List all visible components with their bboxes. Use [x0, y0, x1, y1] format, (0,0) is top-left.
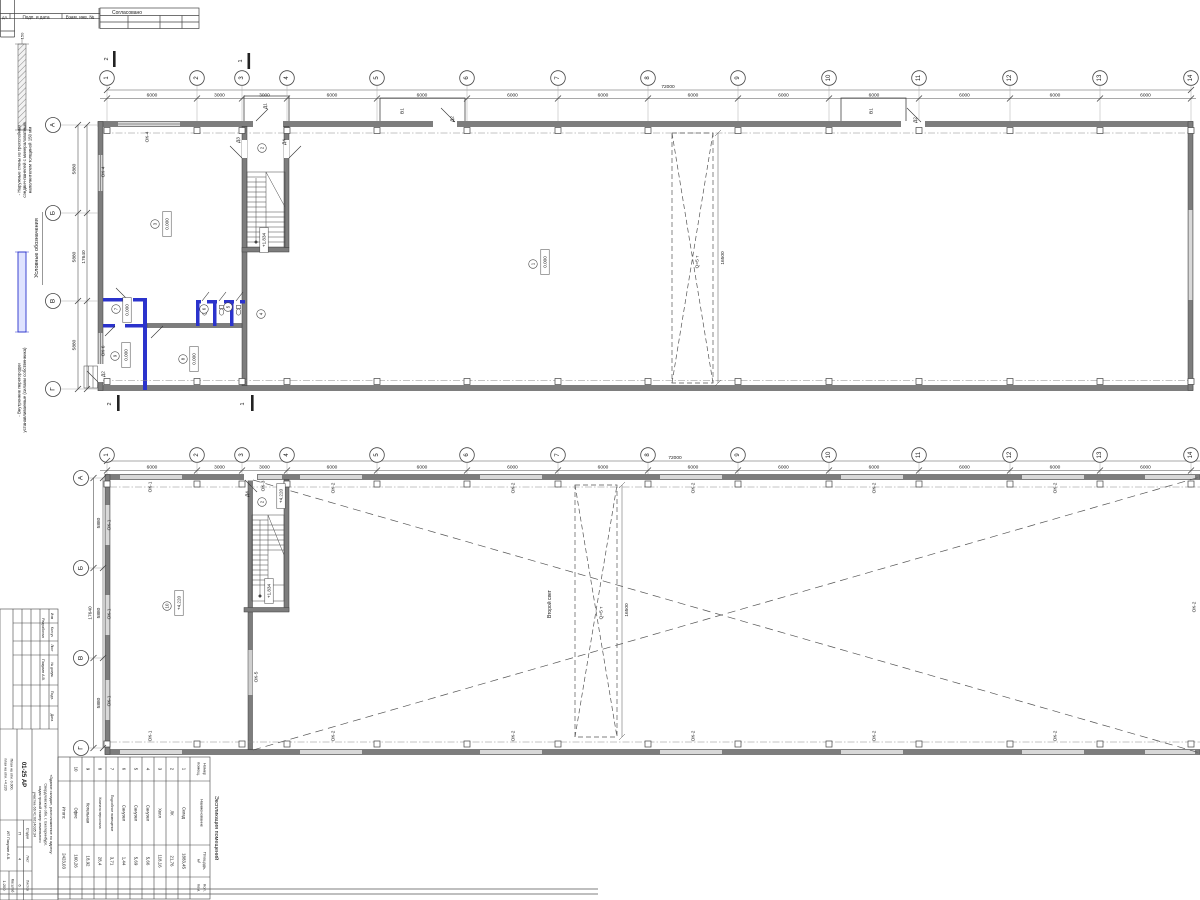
drawing-label: 6000 [507, 464, 518, 470]
level-value: +4.220 [177, 595, 182, 610]
schedule-room-name: ЛК [170, 810, 175, 816]
drawing-label: Взам. инв. № [66, 14, 95, 19]
axis-number: 10 [826, 74, 832, 81]
schedule-room-name: Подсобное помещение [110, 795, 114, 832]
schedule-room-area: 1883,45 [182, 853, 187, 869]
drawing-label: ОК-4 [145, 131, 151, 142]
axis-number: 10 [826, 451, 832, 458]
drawing-label: Q=5 т [599, 606, 605, 620]
schedule-room-area: 118,16 [158, 854, 163, 868]
floor-plan-drawing: ИзмКол.учЛист№ докум.Подп.ДатаРазработал… [0, 0, 1200, 900]
stamp-text: 6 [18, 884, 23, 887]
drawing-label: 6000 [147, 464, 158, 470]
door-openings [98, 121, 926, 383]
schedule-room-number: 2 [170, 768, 175, 771]
drawing-label: Q=5 т [695, 255, 701, 269]
plan-first-floor [78, 51, 1196, 411]
drawing-label: ОК-1 [107, 608, 113, 619]
drawing-label: В1 [400, 108, 406, 114]
schedule-room-number: 1 [182, 768, 187, 771]
drawing-label: 5880 [96, 607, 102, 618]
level-mark: 0.000 [163, 212, 171, 237]
schedule-room-area: 3,71 [110, 857, 115, 866]
stamp-text: «Здание склада», расположенное по адресу… [49, 775, 53, 855]
axis-letter: Б [50, 211, 57, 215]
schedule-header: Наименование [200, 799, 205, 828]
vestibules [84, 96, 906, 388]
stamp-text: 1:200 [2, 880, 7, 891]
drawing-label: ОК-2 [1053, 730, 1059, 741]
drawing-label: ОК-3 [261, 480, 267, 491]
level-mark: 0.000 [190, 347, 198, 372]
schedule-room-area: 18,92 [86, 856, 91, 868]
drawing-label: 6000 [417, 92, 428, 98]
drawing-label: 6000 [327, 464, 338, 470]
drawing-label: 3000 [259, 464, 270, 470]
drawing-label: ОК-1 [107, 695, 113, 706]
level-mark: 0.000 [123, 298, 131, 323]
drawing-label: 17640 [81, 250, 87, 264]
level-mark: +1.834 [260, 228, 268, 253]
drawing-label: ОК-2 [331, 730, 337, 741]
axis-letter: А [50, 122, 57, 127]
level-mark: +1.834 [265, 579, 273, 604]
schedule-room-number: 7 [110, 768, 115, 771]
drawing-label: Д2 [101, 371, 107, 377]
schedule-room-area: 5,66 [146, 857, 151, 866]
stamp-text: Свердловская обл, г. Екатеринбург, [44, 783, 48, 845]
schedule-room-name: Санузел [122, 805, 127, 822]
drawing-label: 6000 [598, 464, 609, 470]
title-block: ИзмКол.учЛист№ докум.Подп.ДатаРазработал… [0, 609, 58, 900]
drawing-label: ОК-2 [1053, 482, 1059, 493]
drawing-label: 6000 [959, 464, 970, 470]
drawing-label: сэндвич-панелей с минераловатным [22, 122, 27, 197]
drawing-label: ОК-2 [872, 482, 878, 493]
drawing-label: 3000 [259, 92, 270, 98]
schedule-header: помещ. [197, 762, 202, 776]
schedule-room-number: 5 [134, 768, 139, 771]
drawing-label: 6000 [778, 464, 789, 470]
schedule-header: Кол. [203, 884, 208, 892]
drawing-label: 6000 [688, 92, 699, 98]
drawing-label: 5880 [96, 517, 102, 528]
bracing-bay-2 [575, 485, 617, 737]
drawing-label: 16500 [720, 251, 726, 265]
schedule-total-label: Итого: [62, 807, 67, 820]
level-mark: +4.220 [277, 484, 285, 509]
schedule-room-area: 5,69 [134, 857, 139, 866]
drawing-label: 5880 [96, 697, 102, 708]
stamp-text: Пакулин А.В. [41, 659, 45, 681]
schedule-header: Номер [203, 763, 208, 776]
door-leaves [87, 108, 921, 382]
level-value: +4.220 [279, 488, 284, 503]
level-value: 0.000 [124, 349, 129, 361]
axis-letter: В [50, 299, 57, 303]
drawing-label: Подп. и дата [22, 14, 50, 19]
schedule-room-area: 28,4 [98, 857, 103, 866]
drawing-label: 72000 [661, 84, 675, 90]
schedule-room-name: Санузел [134, 805, 139, 822]
schedule-room-name: Комната персонала [98, 797, 102, 828]
drawing-label: 6000 [1140, 92, 1151, 98]
stamp-text: Лист [50, 644, 54, 652]
drawing-label: 6000 [688, 464, 699, 470]
schedule-header: м² [197, 859, 202, 864]
drawing-label: 2 [107, 402, 113, 405]
room-schedule: Экспликация помещенийНомерпомещ.Наименов… [58, 757, 220, 899]
schedule-room-name: Котельная [86, 803, 91, 823]
drawing-label: Второй свет [546, 589, 553, 618]
stamp-text: кадастровый номер земельного [38, 786, 42, 842]
level-value: +1.834 [267, 583, 272, 598]
axis-letter: Б [78, 566, 85, 570]
drawing-label: 72000 [668, 455, 682, 461]
stamp-text: Лист [26, 855, 30, 863]
drawing-label: 6000 [417, 464, 428, 470]
axis-number: 13 [1097, 74, 1103, 81]
stamp-text: Кол.уч [50, 627, 54, 637]
schedule-room-area: 21,76 [170, 856, 175, 868]
drawing-label: ОК-1 [107, 519, 113, 530]
drawing-label: устанавливаемые (силами собственника) [22, 347, 27, 433]
schedule-room-name: Холл [158, 808, 163, 818]
drawing-label: ОК-2 [511, 482, 517, 493]
axis-number: 14 [1188, 74, 1194, 81]
schedule-room-name: Склад [182, 807, 187, 820]
schedule-room-number: 4 [146, 768, 151, 771]
schedule-title: Экспликация помещений [213, 796, 220, 860]
axis-number: 14 [1188, 451, 1194, 458]
stamp-text: Стадия [26, 828, 30, 839]
drawing-label: Д4 [282, 139, 288, 145]
level-mark: 0.000 [122, 343, 130, 368]
stamp-text: Разработал [41, 618, 45, 638]
drawing-label: Д3 [236, 137, 242, 143]
axis-number: 11 [916, 451, 922, 458]
level-value: +1.834 [262, 232, 267, 247]
stamp-text: № докум. [50, 663, 54, 678]
drawing-label: ОК-2 [511, 730, 517, 741]
schedule-room-name: Санузел [146, 805, 151, 822]
drawing-label: 6000 [507, 92, 518, 98]
axis-letter: Г [50, 387, 57, 391]
drawing-label: В1 [869, 108, 875, 114]
stamp-text: участка 66:41:0614035:34 [33, 792, 37, 837]
schedule-header: пом. [197, 884, 202, 892]
door-opening-2 [244, 474, 257, 481]
schedule-room-number: 3 [158, 768, 163, 771]
drawing-label: Д2 [913, 117, 919, 123]
drawing-label: 16500 [624, 603, 630, 617]
drawing-label: ОК-2 [691, 482, 697, 493]
drawing-label: 6000 [959, 92, 970, 98]
drawing-label: Условные обозначения [34, 218, 40, 277]
axis-letter: Г [78, 746, 85, 750]
drawing-label: 6000 [1050, 92, 1061, 98]
axis-number: 12 [1007, 451, 1013, 458]
sheet-frame-bottom [0, 889, 598, 894]
drawing-label: ОК-2 [691, 730, 697, 741]
stamp-text: план на отм. +4.220 [4, 758, 8, 790]
level-mark: 0.000 [541, 250, 549, 275]
axis-number: 11 [916, 74, 922, 81]
axis-lines [103, 133, 1190, 381]
bracing-bay [672, 133, 713, 383]
schedule-header: Площадь, [203, 852, 208, 871]
drawing-label: 1 [240, 402, 246, 405]
drawing-label: Согласовано [112, 10, 142, 16]
walls [98, 122, 1193, 391]
drawing-label: 5880 [72, 339, 78, 350]
level-value: 0.000 [125, 304, 130, 316]
axis-letter: А [78, 475, 85, 480]
stamp-text: Листов [26, 880, 30, 891]
drawing-label: 6000 [1140, 464, 1151, 470]
drawing-label: ОК-1 [148, 481, 154, 492]
drawing-label: ОК-2 [1192, 601, 1198, 612]
walls-2 [105, 475, 1200, 755]
axis-letter: В [78, 656, 85, 660]
schedule-room-area: 160,26 [74, 854, 79, 868]
stamp-text: План на отм. 0.000, [10, 759, 14, 791]
drawing-label: 3000 [214, 464, 225, 470]
axis-number: 13 [1097, 451, 1103, 458]
axis-number: 12 [1007, 74, 1013, 81]
drawing-label: - Наружные стены из трехслойных [17, 124, 22, 195]
schedule-room-number: 6 [122, 768, 127, 771]
stamp-text: Дата [50, 714, 54, 722]
partition-symbol [18, 252, 26, 332]
schedule-room-number: 10 [74, 767, 79, 772]
drawing-label: 5880 [72, 163, 78, 174]
level-value: 0.000 [165, 218, 170, 230]
drawing-label: 2 [104, 57, 110, 60]
level-value: 0.000 [192, 353, 197, 365]
schedule-room-area: 1,44 [122, 857, 127, 866]
room-number: 10 [165, 603, 170, 608]
drawing-label: 6000 [598, 92, 609, 98]
drawing-label: 6000 [869, 464, 880, 470]
stamp-text: 4 [18, 858, 23, 861]
exterior-wall-symbol [18, 44, 26, 130]
drawing-label: наполнителем толщиной 150 мм [28, 127, 33, 194]
schedule-room-number: 8 [98, 768, 103, 771]
drawing-label: 6000 [1050, 464, 1061, 470]
schedule-total-value: 2423,03 [62, 853, 67, 869]
drawing-label: 1 [238, 59, 244, 62]
drawing-label: ОК-4 [101, 166, 107, 177]
drawing-label: - Внутренние перегородки [17, 363, 22, 417]
void-cross [253, 477, 1200, 753]
stamp-text: ИП Пакулин А.В. [6, 831, 10, 861]
drawing-label: ОК-2 [331, 482, 337, 493]
drawing-sheet: ИзмКол.учЛист№ докум.Подп.ДатаРазработал… [0, 0, 1200, 900]
drawing-label: ОК-6 [101, 345, 107, 356]
drawing-label: ОК-1 [148, 730, 154, 741]
drawing-label: 17640 [88, 606, 94, 620]
drawing-label: 150 [20, 32, 25, 39]
stamp-text: 01-25 АР [20, 762, 26, 787]
drawing-label: Д2 [450, 116, 456, 122]
stamp-text: Изм [50, 613, 54, 620]
drawing-label: дл. [2, 14, 8, 19]
drawing-label: ОК-2 [872, 730, 878, 741]
drawing-label: 6000 [869, 92, 880, 98]
drawing-label: 6000 [147, 92, 158, 98]
schedule-room-number: 9 [86, 768, 91, 771]
drawing-label: 3000 [214, 92, 225, 98]
drawing-label: Д4 [245, 491, 251, 497]
drawing-label: ОК-5 [254, 671, 260, 682]
level-mark: +4.220 [175, 591, 183, 616]
stamp-text: Масштаб [11, 879, 15, 893]
drawing-label: 6000 [327, 92, 338, 98]
schedule-room-name: Офис [74, 807, 79, 818]
drawing-label: Д1 [263, 103, 269, 109]
stamp-text: Подп. [50, 691, 54, 700]
level-value: 0.000 [543, 256, 548, 268]
stamp-text: П [18, 832, 23, 835]
drawing-label: 6000 [778, 92, 789, 98]
drawing-label: 5880 [72, 251, 78, 262]
